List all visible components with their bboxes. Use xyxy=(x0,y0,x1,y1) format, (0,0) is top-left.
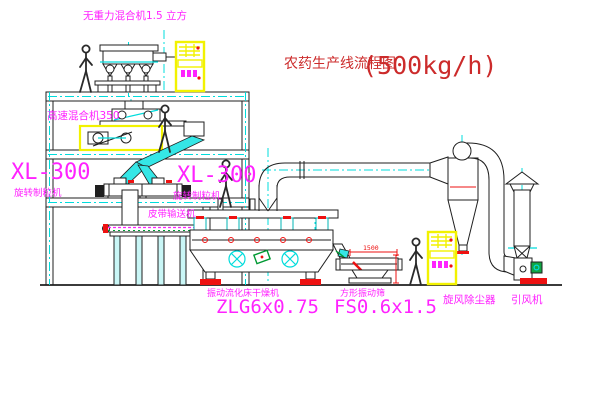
xl300-left-model-label: XL-300 xyxy=(11,160,90,185)
cabinet-indicator-marks xyxy=(432,261,448,268)
indicator-dot xyxy=(197,76,200,79)
screen-model-label: FS0.6x1.5 xyxy=(334,296,437,318)
person-figure-ground xyxy=(410,238,422,285)
fluidbed-dryer xyxy=(188,199,338,285)
exhaust-stack xyxy=(506,172,538,258)
vibrating-screen: 1500 xyxy=(333,244,402,283)
fan-base xyxy=(520,278,547,284)
cyclone-label: 旋风除尘器 xyxy=(443,293,496,306)
dryer-model-label: ZLG6x0.75 xyxy=(216,296,319,318)
cabinet-indicator-marks xyxy=(181,70,197,77)
control-cabinet-2 xyxy=(428,232,456,284)
xl300-left-name-label: 旋转制粒机 xyxy=(14,187,62,199)
gravity-mixer-label: 无重力混合机1.5 立方 xyxy=(83,9,187,22)
control-cabinet-1 xyxy=(176,42,204,91)
fan-label: 引风机 xyxy=(511,293,543,306)
indicator-dot xyxy=(196,46,199,49)
granulator-discharge-duct xyxy=(122,190,138,228)
person-figure-roof xyxy=(80,45,92,92)
exhaust-duct xyxy=(259,157,448,211)
title-capacity: (500kg/h) xyxy=(362,51,497,80)
dimension-1500: 1500 xyxy=(350,244,397,256)
dim-1500-text: 1500 xyxy=(363,244,379,252)
belt-conveyor-label: 皮带输送机 xyxy=(148,208,196,220)
diagram-title: 农药生产线流程图 (500kg/h) xyxy=(284,51,497,80)
cyclone-inlet-transition xyxy=(430,157,448,184)
gravity-free-mixer xyxy=(95,45,183,92)
highspeed-mixer-label: 高速混合机350 xyxy=(47,109,120,122)
fan-motor xyxy=(531,262,542,273)
xl300-right-model-label: XL-300 xyxy=(177,163,256,188)
indicator-dot xyxy=(449,238,452,241)
drawing-surface: 1500 无重力混合机1.5 立方 高速混合机350 XL-300 旋转制粒机 … xyxy=(0,0,600,403)
cad-flow-diagram: 1500 无重力混合机1.5 立方 高速混合机350 XL-300 旋转制粒机 … xyxy=(0,0,600,403)
indicator-dot xyxy=(449,264,452,267)
induced-draft-fan xyxy=(504,256,547,284)
xl300-right-name-label: 旋转制粒机 xyxy=(173,190,221,202)
mixer-funnels xyxy=(103,64,153,81)
